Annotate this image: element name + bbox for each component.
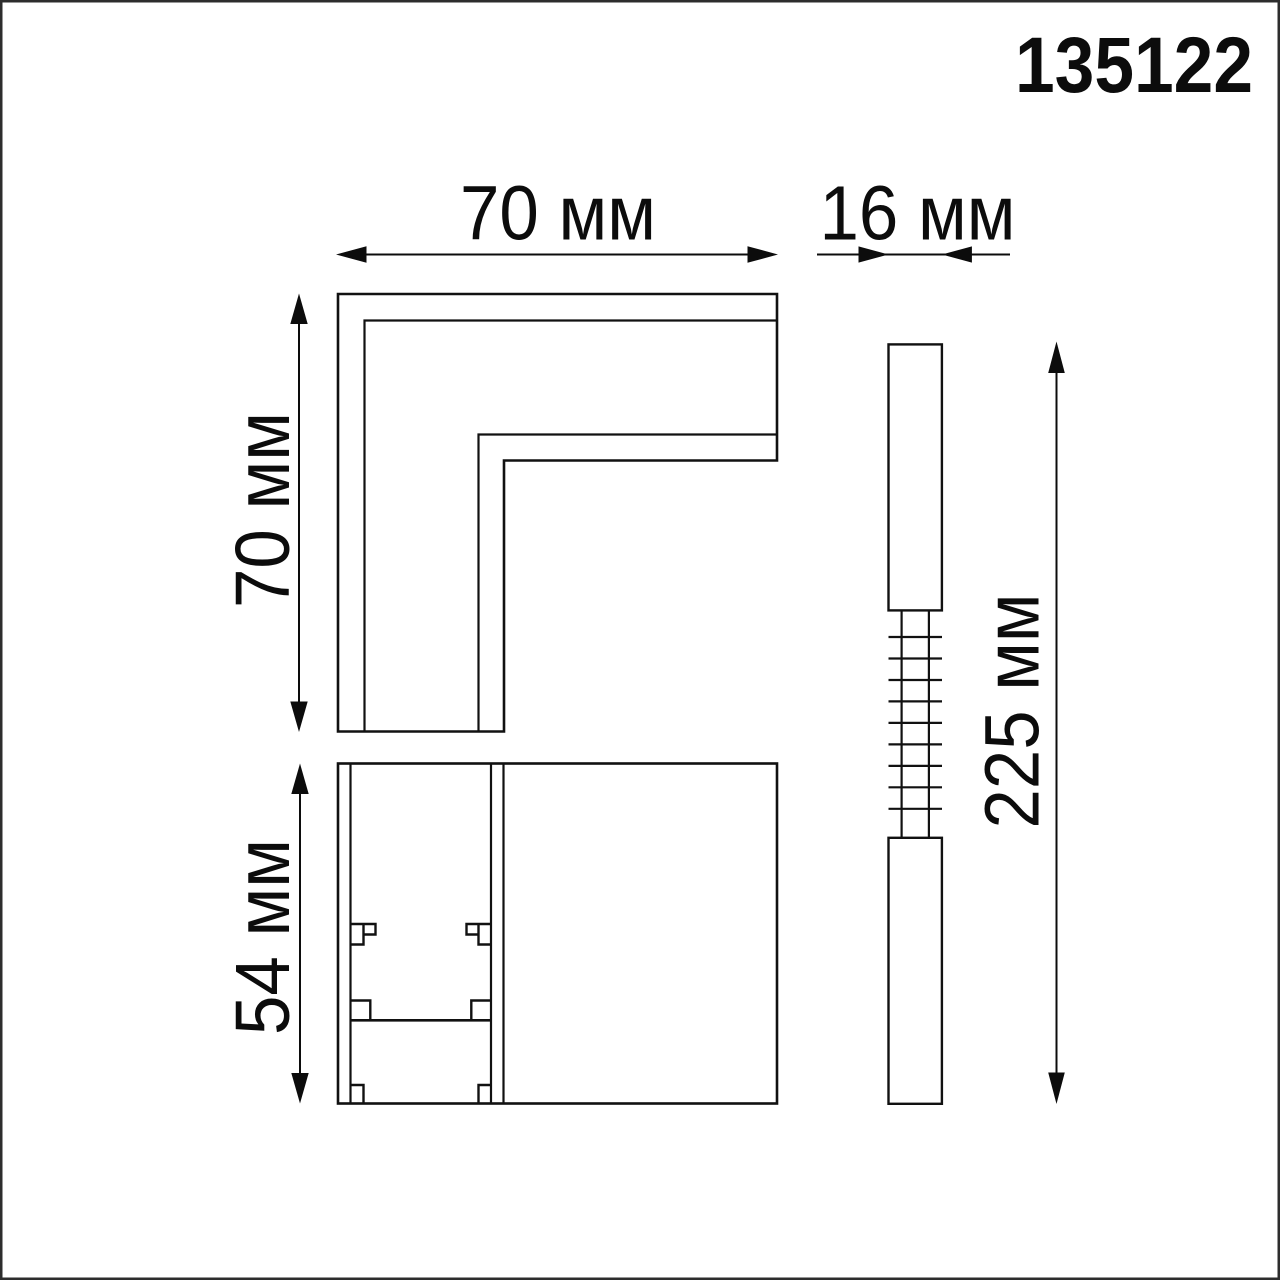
svg-text:70 мм: 70 мм: [220, 412, 306, 608]
svg-text:225 мм: 225 мм: [970, 594, 1056, 829]
svg-text:135122: 135122: [1015, 20, 1253, 109]
svg-text:54 мм: 54 мм: [220, 839, 306, 1035]
svg-text:16 мм: 16 мм: [820, 171, 1016, 257]
svg-text:70 мм: 70 мм: [460, 171, 656, 257]
